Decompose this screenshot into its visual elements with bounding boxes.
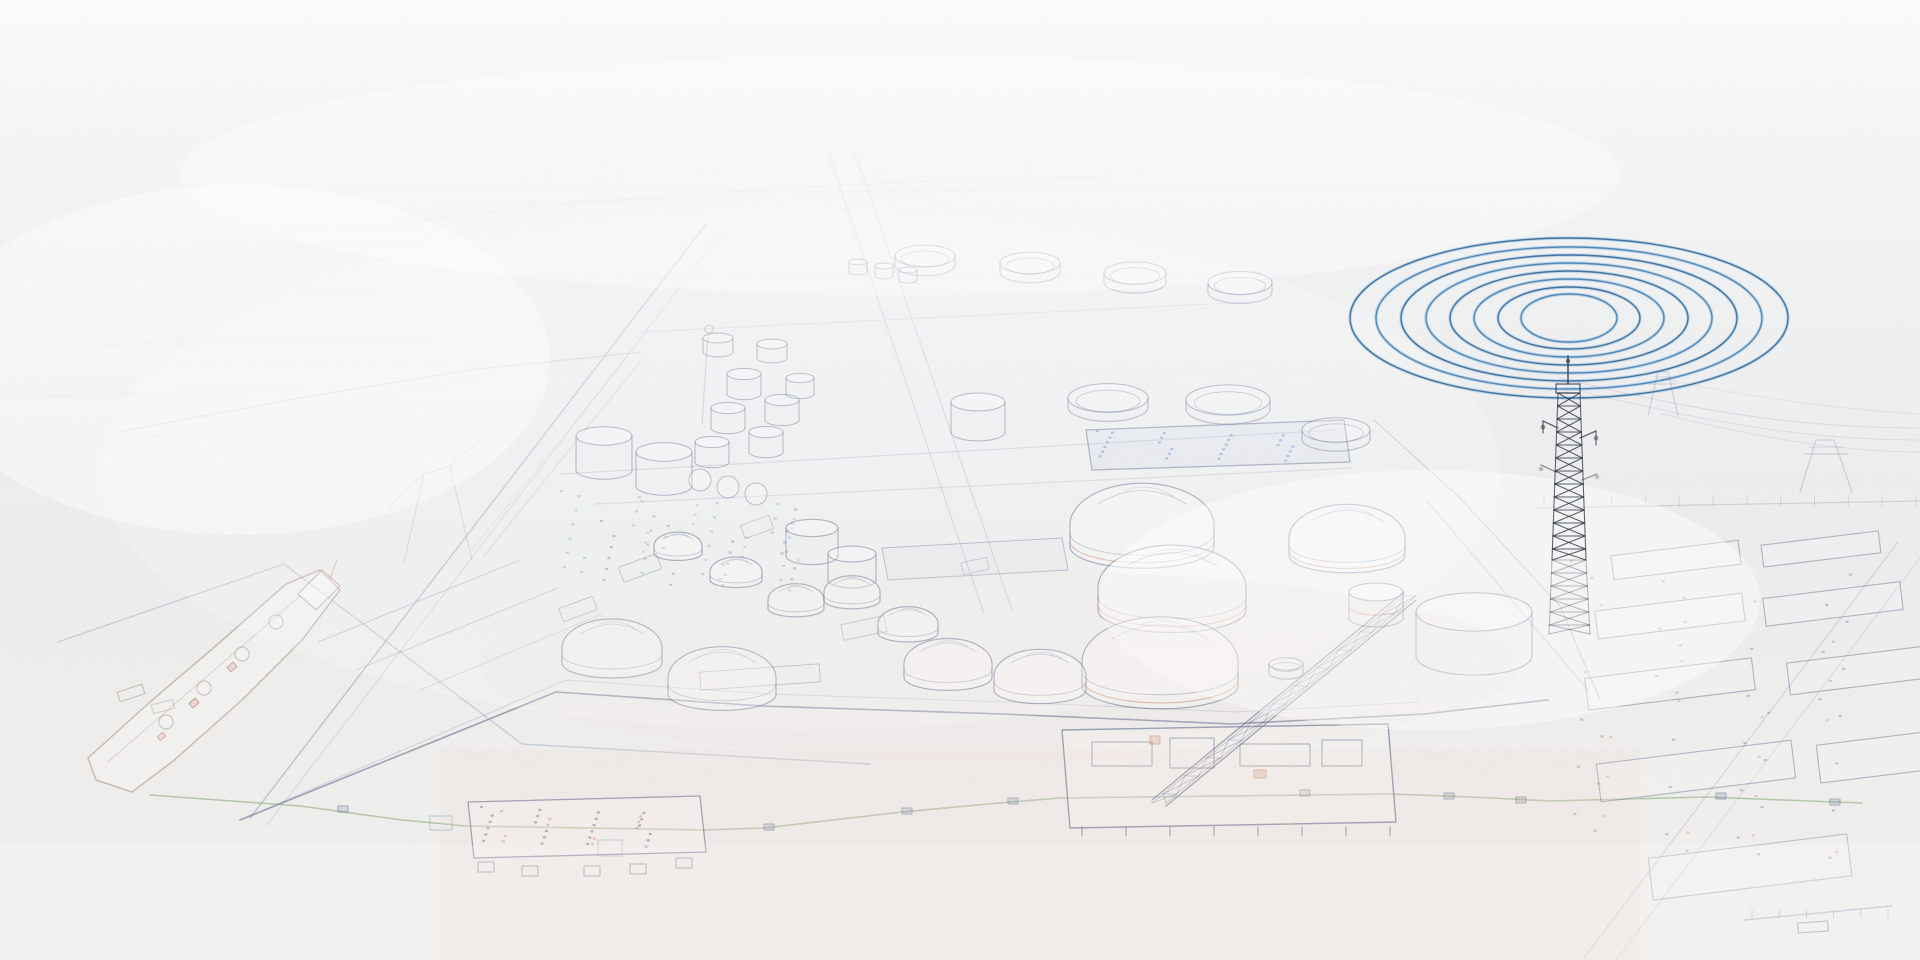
scene-canvas xyxy=(0,0,1920,960)
paper-grain-texture xyxy=(0,0,1920,960)
sketch-illustration xyxy=(0,0,1920,960)
